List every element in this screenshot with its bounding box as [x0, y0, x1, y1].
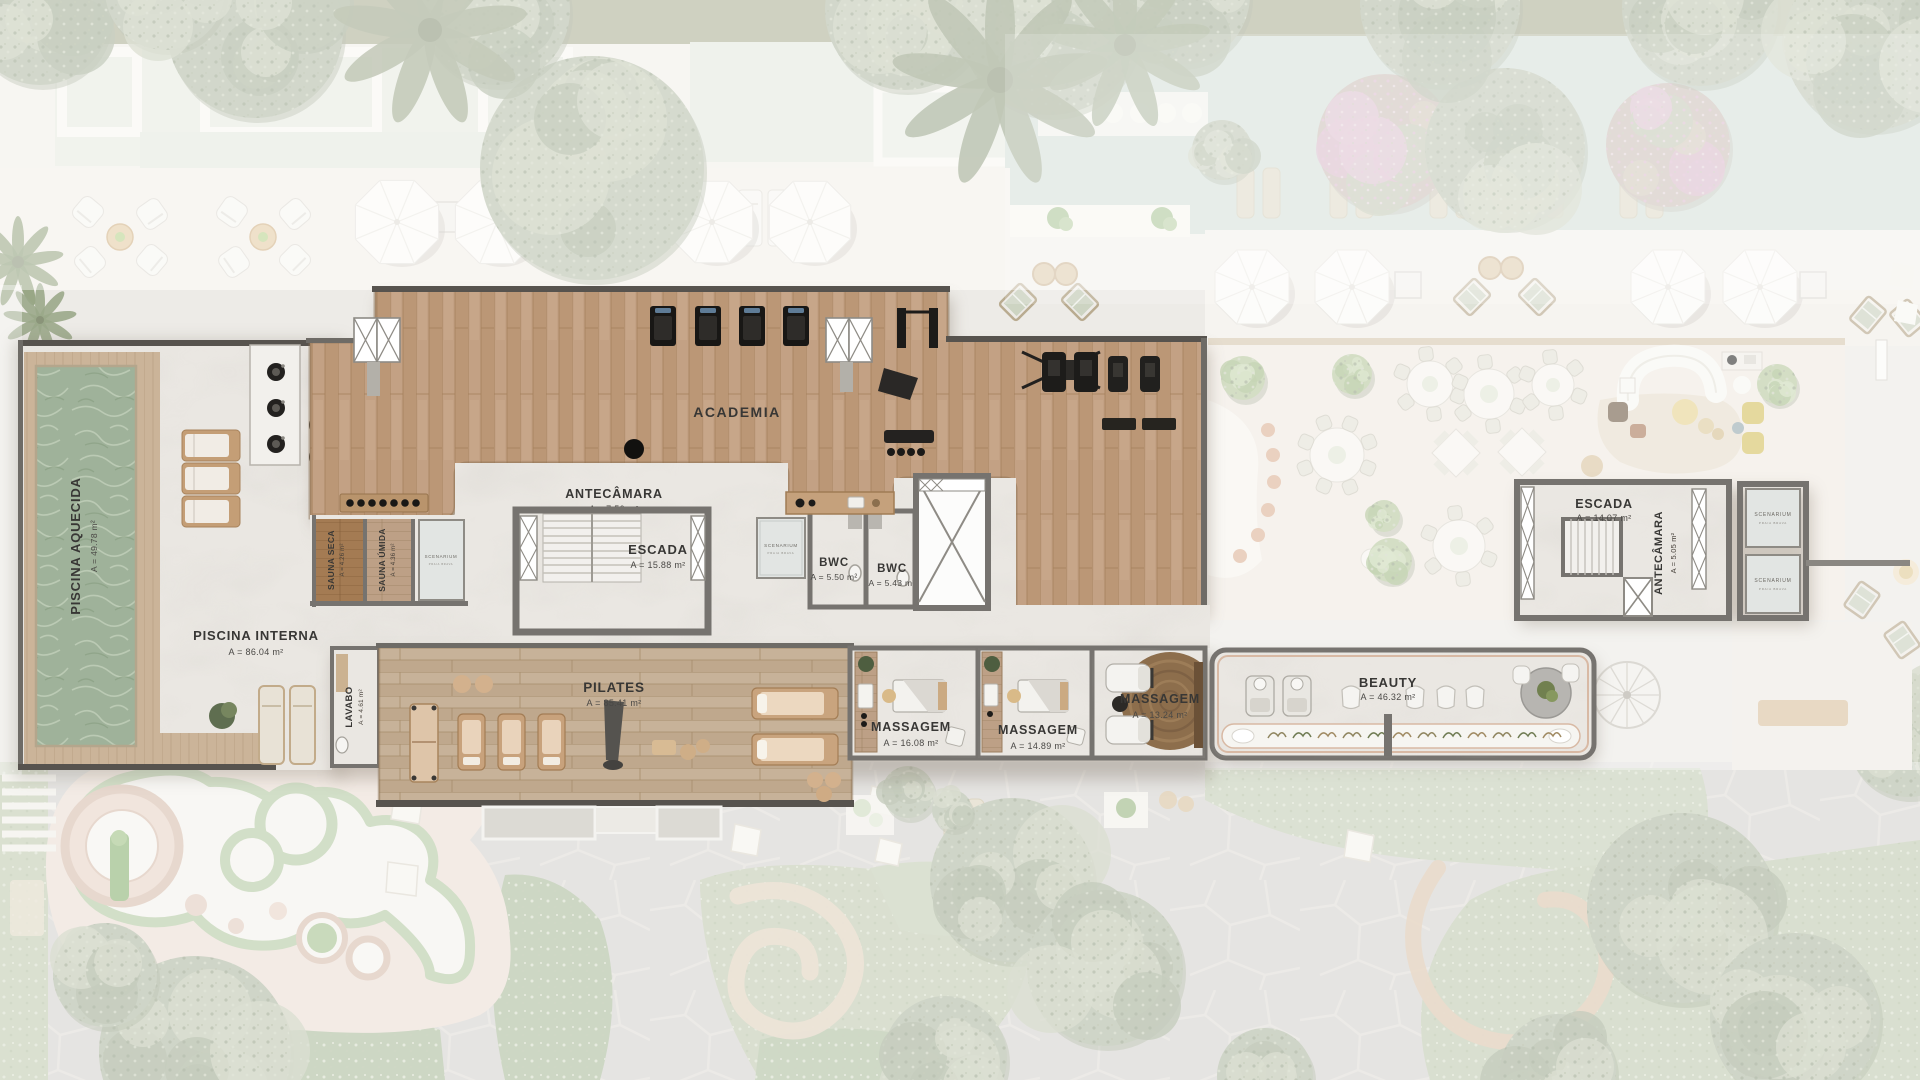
- svg-text:A = 5.43 m²: A = 5.43 m²: [868, 578, 915, 588]
- svg-text:ANTECÂMARA: ANTECÂMARA: [1652, 511, 1665, 595]
- svg-text:A = 5.50 m²: A = 5.50 m²: [810, 572, 857, 582]
- svg-text:A = 16.08 m²: A = 16.08 m²: [884, 738, 939, 748]
- svg-text:A = 86.04 m²: A = 86.04 m²: [229, 647, 284, 657]
- svg-text:MASSAGEM: MASSAGEM: [998, 723, 1078, 737]
- svg-text:A = 46.32 m²: A = 46.32 m²: [1361, 692, 1416, 702]
- svg-text:BWC: BWC: [877, 563, 907, 575]
- svg-text:A = 14.89 m²: A = 14.89 m²: [1011, 741, 1066, 751]
- svg-text:A = 85.41 m²: A = 85.41 m²: [587, 698, 642, 708]
- svg-text:ESCADA: ESCADA: [628, 542, 688, 557]
- svg-text:ESCADA: ESCADA: [1575, 497, 1633, 511]
- svg-text:SCENARIUM: SCENARIUM: [1754, 578, 1791, 584]
- svg-text:A = 14.07 m²: A = 14.07 m²: [1577, 513, 1632, 523]
- svg-text:PRAIA BRAVA: PRAIA BRAVA: [429, 562, 453, 566]
- svg-text:PRAIA BRAVA: PRAIA BRAVA: [768, 551, 795, 555]
- svg-text:PISCINA AQUECIDA: PISCINA AQUECIDA: [68, 477, 83, 615]
- svg-text:BWC: BWC: [819, 557, 849, 569]
- svg-text:PISCINA INTERNA: PISCINA INTERNA: [193, 628, 319, 643]
- svg-text:A = 13.24 m²: A = 13.24 m²: [1133, 710, 1188, 720]
- svg-text:A = 4.26 m²: A = 4.26 m²: [340, 543, 346, 576]
- svg-text:PRAIA BRAVA: PRAIA BRAVA: [1759, 587, 1787, 591]
- svg-text:ACADEMIA: ACADEMIA: [693, 404, 780, 420]
- svg-text:MASSAGEM: MASSAGEM: [871, 720, 951, 734]
- svg-text:LAVABO: LAVABO: [344, 686, 355, 727]
- svg-text:SCENARIUM: SCENARIUM: [1754, 512, 1791, 518]
- svg-text:PRAIA BRAVA: PRAIA BRAVA: [1759, 521, 1787, 525]
- svg-text:SAUNA ÚMIDA: SAUNA ÚMIDA: [376, 528, 387, 591]
- svg-text:A = 4.36 m²: A = 4.36 m²: [391, 543, 397, 576]
- svg-text:A = 49.78 m²: A = 49.78 m²: [89, 520, 99, 572]
- svg-text:SCENARIUM: SCENARIUM: [425, 554, 458, 559]
- svg-text:A = 15.88 m²: A = 15.88 m²: [631, 560, 686, 570]
- svg-text:A = 5.05 m²: A = 5.05 m²: [1669, 532, 1678, 573]
- svg-text:PILATES: PILATES: [583, 680, 645, 695]
- svg-text:BEAUTY: BEAUTY: [1359, 675, 1417, 690]
- svg-text:SAUNA SECA: SAUNA SECA: [326, 530, 336, 590]
- svg-text:SCENARIUM: SCENARIUM: [764, 543, 798, 548]
- svg-text:MASSAGEM: MASSAGEM: [1120, 692, 1200, 706]
- svg-text:ANTECÂMARA: ANTECÂMARA: [565, 486, 663, 501]
- svg-text:A = 4.61 m²: A = 4.61 m²: [358, 689, 365, 725]
